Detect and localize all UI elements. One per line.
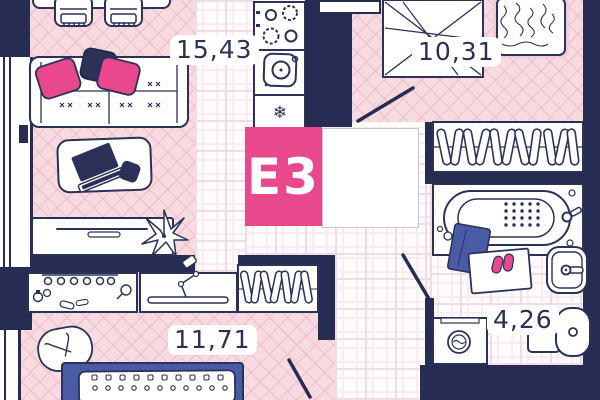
apartment-floor-plan: ❄ E3 15,43 10,31 11,71 4,26 [0,0,600,400]
bedroom-2-area-label: 11,71 [168,325,257,355]
bedroom-2-closet [238,265,318,312]
living-room-area-label: 15,43 [170,35,259,65]
fridge-snowflake-icon: ❄ [262,103,298,123]
vanity-table [28,273,137,312]
bedroom-2-door-leaf [289,360,310,397]
bedroom-1-area-label: 10,31 [412,37,501,67]
bathroom-area-label: 4,26 [487,305,559,335]
dining-table [33,0,170,8]
plan-info-box [322,128,419,228]
closet-hangers [433,122,583,172]
dining-chair [105,0,142,26]
washing-machine [433,318,487,364]
dining-chair [55,0,92,26]
plan-code-badge: E3 [245,127,322,226]
bedroom-1-door-leaf [358,88,413,121]
bedroom-2-bed [62,363,243,400]
desk-lamp [140,255,237,312]
bathroom-door-leaf [403,255,429,299]
bedroom-1-bed [493,0,569,58]
bathroom-sink [547,247,587,293]
